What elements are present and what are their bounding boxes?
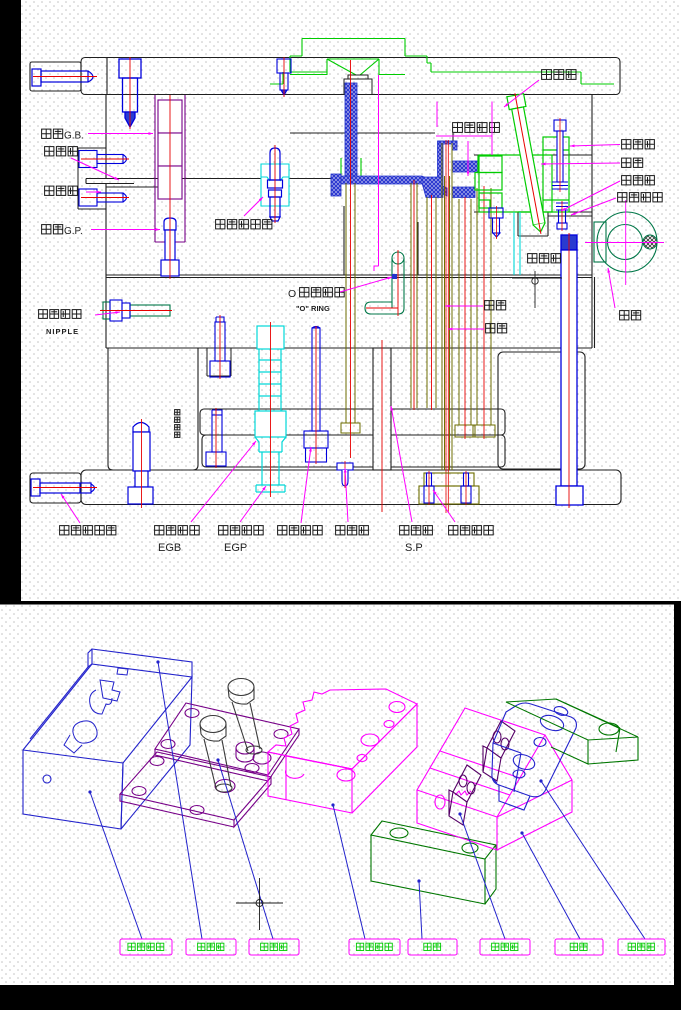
svg-text:NIPPLE: NIPPLE	[46, 327, 79, 336]
svg-text:O: O	[288, 288, 296, 300]
svg-text:"O" RING: "O" RING	[296, 304, 330, 313]
svg-text:EGP: EGP	[224, 542, 247, 554]
svg-text:S.P: S.P	[405, 542, 423, 554]
svg-text:G.B.: G.B.	[64, 131, 84, 142]
svg-text:G.P.: G.P.	[64, 226, 83, 237]
svg-text:EGB: EGB	[158, 542, 181, 554]
